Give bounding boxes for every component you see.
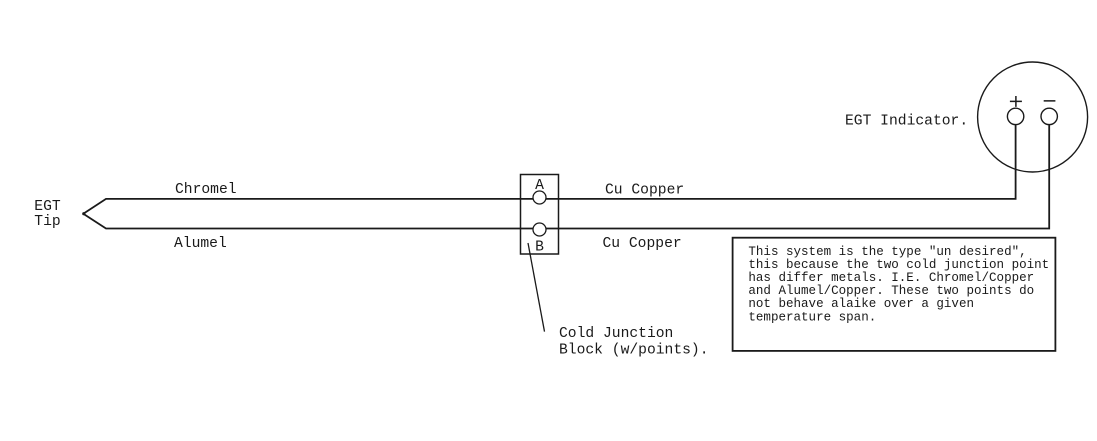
svg-text:EGT Indicator.: EGT Indicator.	[845, 114, 968, 130]
svg-text:temperature span.: temperature span.	[748, 310, 876, 324]
svg-text:EGT: EGT	[34, 199, 61, 215]
svg-text:Alumel: Alumel	[174, 236, 227, 252]
svg-text:Tip: Tip	[34, 214, 60, 230]
svg-text:Cu Copper: Cu Copper	[603, 236, 682, 252]
svg-text:This system is the type "un de: This system is the type "un desired",	[748, 245, 1026, 259]
svg-text:not behave alaike over a given: not behave alaike over a given	[748, 297, 974, 311]
svg-text:A: A	[535, 178, 544, 194]
svg-text:and Alumel/Copper. These two p: and Alumel/Copper. These two points do	[748, 284, 1034, 298]
svg-text:this because the two cold junc: this because the two cold junction point	[748, 258, 1049, 272]
svg-text:Block (w/points).: Block (w/points).	[559, 342, 709, 358]
svg-text:B: B	[535, 239, 544, 255]
svg-text:Cu Copper: Cu Copper	[605, 183, 684, 199]
svg-text:has differ metals. I.E. Chrome: has differ metals. I.E. Chromel/Copper	[748, 271, 1034, 285]
svg-text:Cold Junction: Cold Junction	[559, 326, 673, 342]
svg-text:Chromel: Chromel	[175, 182, 237, 198]
